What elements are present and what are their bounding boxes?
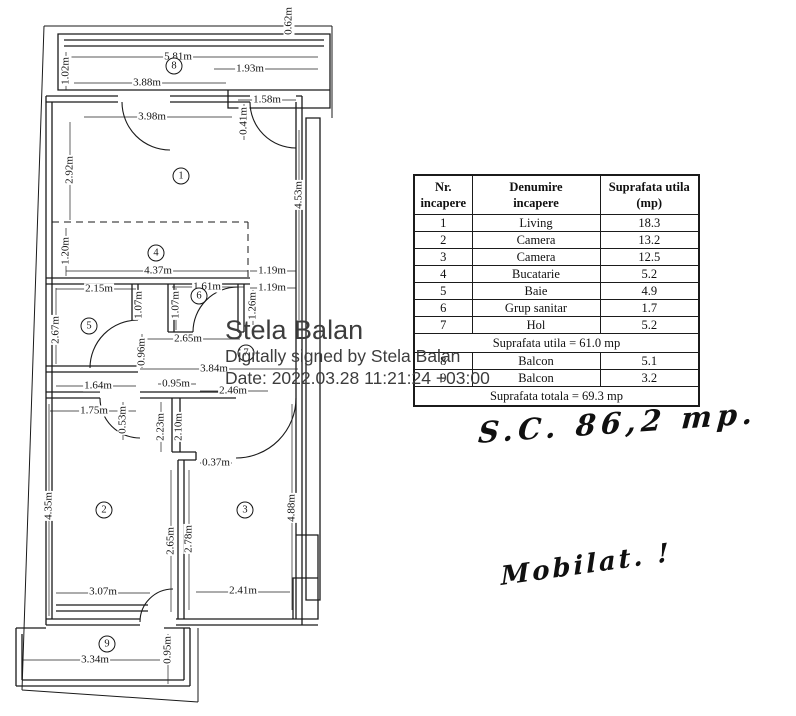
room-area-cell: 3.2	[600, 370, 699, 387]
dimension-label: 2.65m	[173, 334, 203, 345]
dimension-label: 1.07m	[171, 290, 182, 320]
dimension-label: 2.67m	[51, 315, 62, 345]
dimension-label: 1.58m	[252, 95, 282, 106]
room-number-cell: 2	[414, 232, 472, 249]
dimension-label: 4.53m	[294, 180, 305, 210]
table-row: 1 Living 18.3	[414, 215, 699, 232]
room-number-badge: 2	[96, 502, 113, 519]
dimension-label: 0.53m	[118, 405, 129, 435]
dimension-label: 4.35m	[44, 491, 55, 521]
room-name-cell: Camera	[472, 232, 600, 249]
table-row: 5 Baie 4.9	[414, 283, 699, 300]
dimension-label: 1.07m	[134, 290, 145, 320]
room-number-badge: 4	[148, 245, 165, 262]
dimension-label: 4.37m	[143, 266, 173, 277]
room-area-cell: 18.3	[600, 215, 699, 232]
room-name-cell: Hol	[472, 317, 600, 334]
room-area-cell: 5.2	[600, 266, 699, 283]
dimension-label: 3.88m	[132, 78, 162, 89]
room-name-cell: Bucatarie	[472, 266, 600, 283]
room-name-cell: Balcon	[472, 370, 600, 387]
dimension-label: 2.65m	[166, 526, 177, 556]
dimension-label: 0.95m	[161, 379, 191, 390]
dimension-label: 0.37m	[201, 458, 231, 469]
dimension-label: 2.23m	[156, 412, 167, 442]
table-header-cell: Denumire incapere	[472, 175, 600, 215]
signature-details: Digitally signed by Stela Balan	[225, 346, 490, 368]
room-number-cell: 4	[414, 266, 472, 283]
room-number-badge: 1	[173, 168, 190, 185]
room-name-cell: Grup sanitar	[472, 300, 600, 317]
table-row: 2 Camera 13.2	[414, 232, 699, 249]
dimension-label: 1.93m	[235, 64, 265, 75]
dimension-label: 1.75m	[79, 406, 109, 417]
table-row: 3 Camera 12.5	[414, 249, 699, 266]
dimension-label: 2.78m	[184, 524, 195, 554]
room-area-cell: 5.2	[600, 317, 699, 334]
room-name-cell: Balcon	[472, 353, 600, 370]
dimension-label: 4.88m	[287, 493, 298, 523]
room-number-badge: 8	[166, 58, 183, 75]
dimension-label: 2.10m	[174, 412, 185, 442]
table-header-cell: Suprafata utila (mp)	[600, 175, 699, 215]
dimension-label: 1.19m	[257, 283, 287, 294]
room-number-badge: 9	[99, 636, 116, 653]
scanned-floor-plan-page: 0.62m5.81m1.02m1.93m3.88m1.58m3.98m0.41m…	[0, 0, 796, 716]
dimension-label: 2.41m	[228, 586, 258, 597]
room-number-cell: 1	[414, 215, 472, 232]
dimension-label: 1.19m	[257, 266, 287, 277]
dimension-label: 1.64m	[83, 381, 113, 392]
room-number-cell: 5	[414, 283, 472, 300]
dimension-label: 2.15m	[84, 284, 114, 295]
room-area-cell: 5.1	[600, 353, 699, 370]
dimension-label: 0.41m	[239, 106, 250, 136]
room-area-cell: 12.5	[600, 249, 699, 266]
table-header-row: Nr. incapereDenumire incapereSuprafata u…	[414, 175, 699, 215]
table-row: 6 Grup sanitar 1.7	[414, 300, 699, 317]
dimension-label: 2.92m	[65, 155, 76, 185]
room-number-cell: 6	[414, 300, 472, 317]
room-number-badge: 5	[81, 318, 98, 335]
room-area-cell: 1.7	[600, 300, 699, 317]
table-row: 4 Bucatarie 5.2	[414, 266, 699, 283]
dimension-label: 3.98m	[137, 112, 167, 123]
dimension-label: 1.20m	[61, 236, 72, 266]
dimension-label: 0.95m	[163, 635, 174, 665]
room-name-cell: Living	[472, 215, 600, 232]
dimension-label: 0.62m	[284, 6, 295, 36]
signature-name: Stela Balan	[225, 316, 490, 346]
dimension-label: 3.34m	[80, 655, 110, 666]
dimension-label: 0.96m	[137, 337, 148, 367]
room-number-badge: 6	[191, 288, 208, 305]
room-number-cell: 3	[414, 249, 472, 266]
dimension-label: 3.07m	[88, 587, 118, 598]
digital-signature: Stela Balan Digitally signed by Stela Ba…	[225, 316, 490, 389]
room-area-cell: 4.9	[600, 283, 699, 300]
table-header-cell: Nr. incapere	[414, 175, 472, 215]
room-area-cell: 13.2	[600, 232, 699, 249]
room-name-cell: Baie	[472, 283, 600, 300]
room-name-cell: Camera	[472, 249, 600, 266]
room-number-badge: 3	[237, 502, 254, 519]
signature-date: Date: 2022.03.28 11:21:24 +03:00	[225, 368, 490, 390]
dimension-label: 1.02m	[61, 56, 72, 86]
